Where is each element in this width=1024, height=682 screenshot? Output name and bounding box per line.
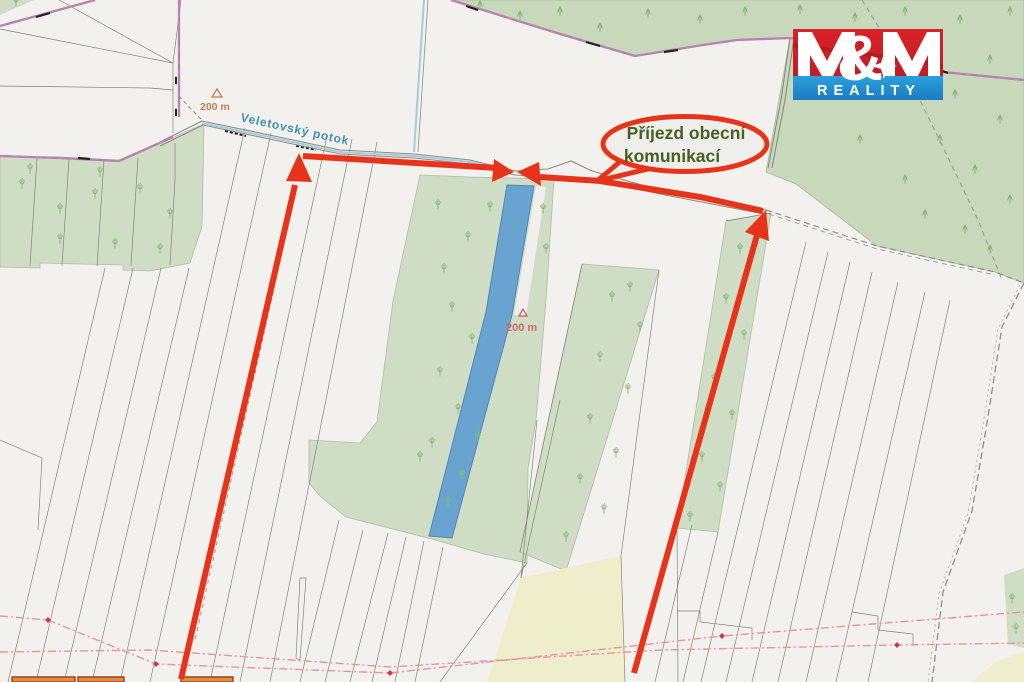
svg-text:REALITY: REALITY [817, 83, 921, 99]
svg-text:Příjezd obecní: Příjezd obecní [627, 123, 747, 143]
svg-text:200 m: 200 m [200, 101, 230, 113]
svg-text:200 m: 200 m [506, 322, 537, 334]
svg-text:komunikací: komunikací [624, 146, 721, 166]
